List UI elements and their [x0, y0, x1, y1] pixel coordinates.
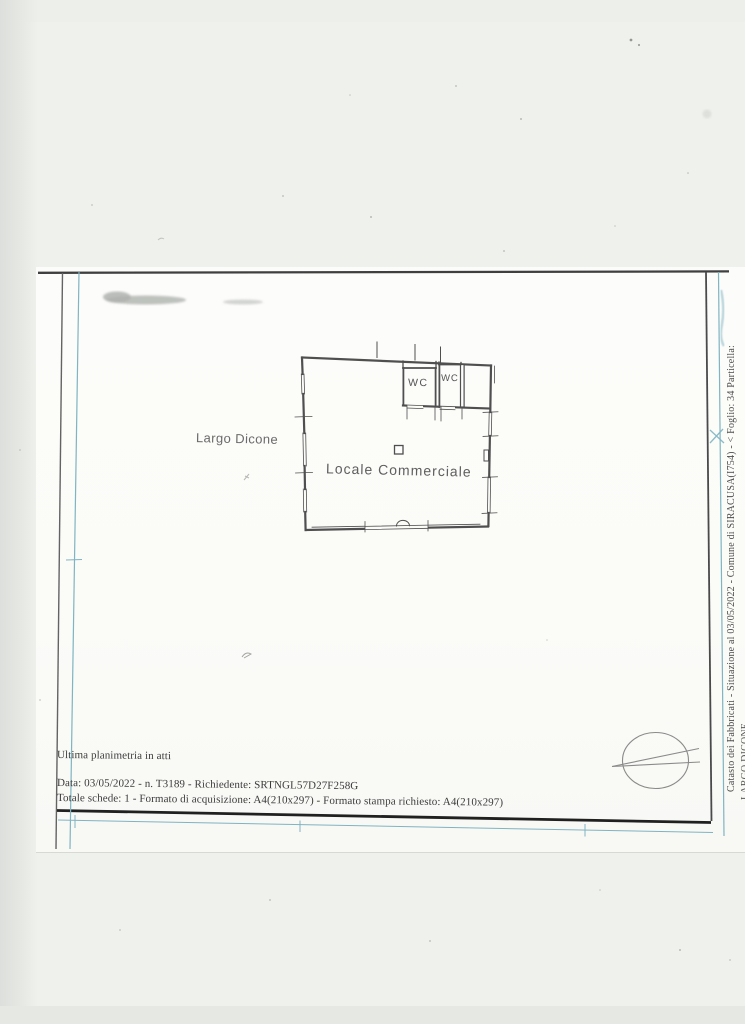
black-frame	[38, 271, 729, 849]
footer-line-1: Ultima planimetria in atti	[57, 749, 171, 762]
column-symbol	[395, 446, 404, 455]
blue-frame	[58, 272, 724, 849]
scanned-cadastral-document: Largo Dicone Locale Commerciale WC WC Ul…	[0, 0, 745, 1024]
scan-specks	[19, 39, 731, 961]
street-label: Largo Dicone	[196, 430, 278, 447]
blue-highlight-smudge	[721, 290, 724, 346]
scan-linework	[0, 0, 745, 1024]
room-label: Locale Commerciale	[326, 460, 472, 479]
side-caption-catasto: Catasto dei Fabbricati - Situazione al 0…	[726, 345, 737, 792]
north-orientation-symbol	[612, 733, 700, 789]
wc-right-label: WC	[441, 373, 459, 384]
side-caption-address: LARGO DICONE	[740, 723, 745, 800]
blue-pen-mark	[710, 429, 724, 443]
floor-plan	[295, 342, 498, 532]
scan-smudge	[103, 292, 263, 305]
wc-left-label: WC	[408, 377, 429, 389]
